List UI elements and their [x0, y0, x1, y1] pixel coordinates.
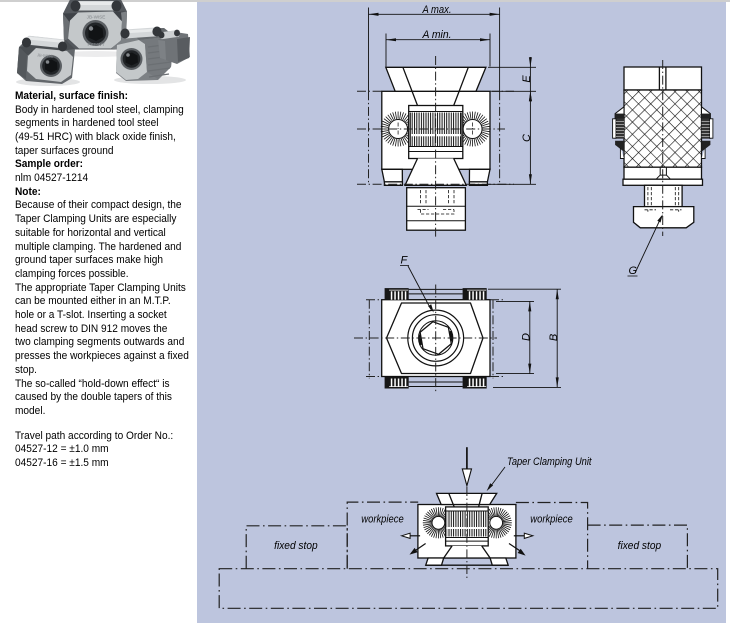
svg-text:fixed stop: fixed stop [618, 540, 662, 552]
svg-text:JB-WISE: JB-WISE [87, 15, 106, 20]
svg-text:F: F [401, 255, 409, 267]
svg-text:C: C [521, 134, 533, 142]
svg-text:fixed stop: fixed stop [274, 540, 318, 552]
svg-text:Taper Clamping Unit: Taper Clamping Unit [507, 456, 592, 468]
svg-text:workpiece: workpiece [361, 514, 404, 526]
svg-text:D: D [521, 333, 533, 341]
svg-text:FX2-WT: FX2-WT [87, 42, 104, 47]
svg-text:B: B [548, 334, 560, 341]
svg-text:A max.: A max. [422, 4, 452, 16]
svg-text:A min.: A min. [422, 29, 452, 41]
svg-text:workpiece: workpiece [530, 514, 573, 526]
svg-text:E: E [521, 75, 533, 83]
svg-text:G: G [629, 265, 638, 277]
